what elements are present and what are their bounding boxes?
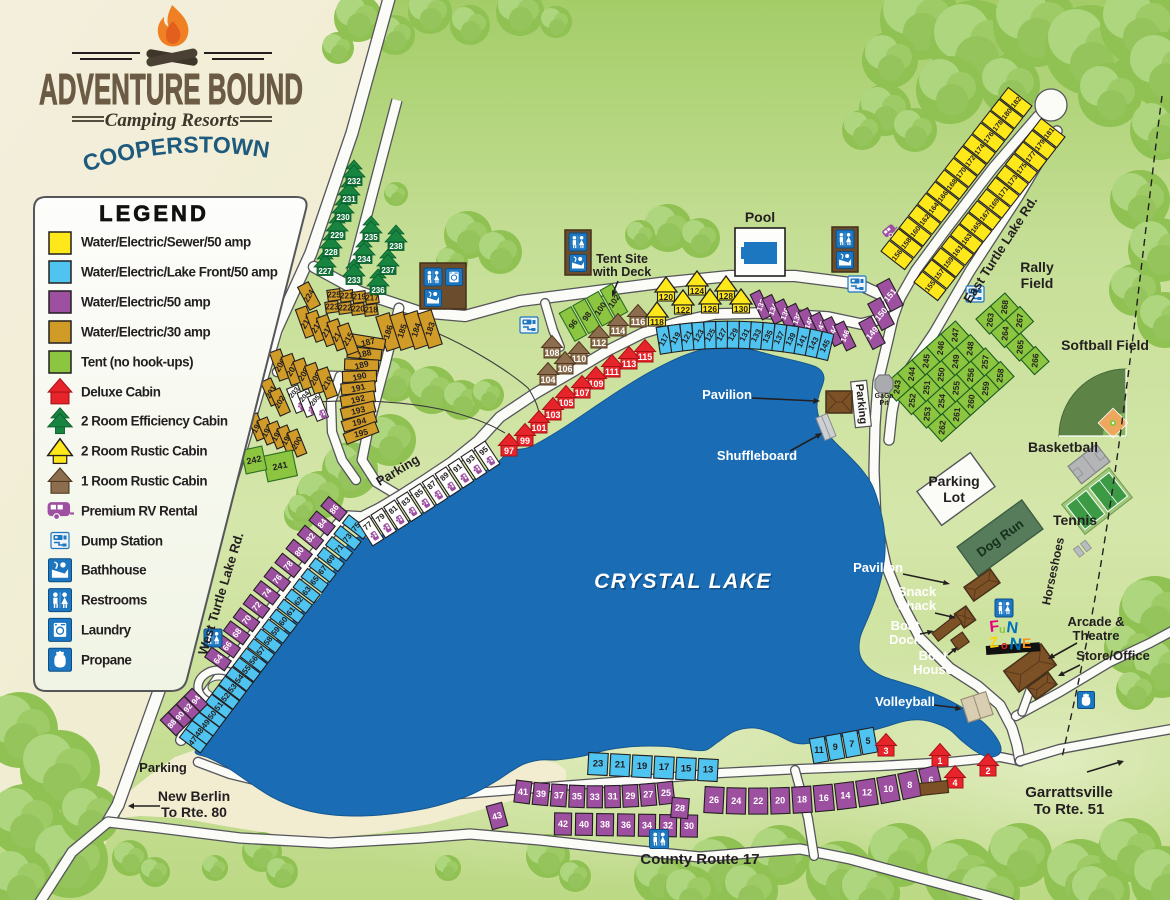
svg-text:Pavilion: Pavilion — [853, 560, 903, 575]
svg-text:Theatre: Theatre — [1073, 628, 1120, 643]
svg-text:106: 106 — [557, 364, 572, 374]
svg-text:246: 246 — [935, 340, 946, 355]
svg-text:37: 37 — [554, 790, 564, 800]
svg-text:259: 259 — [980, 381, 991, 396]
svg-text:Field: Field — [1021, 275, 1054, 291]
svg-text:18: 18 — [797, 795, 807, 805]
svg-text:11: 11 — [814, 745, 824, 755]
svg-text:To Rte. 51: To Rte. 51 — [1034, 801, 1105, 818]
svg-text:1: 1 — [937, 756, 942, 766]
svg-text:107: 107 — [574, 388, 589, 398]
svg-text:116: 116 — [631, 317, 646, 327]
svg-text:223: 223 — [325, 303, 339, 312]
svg-text:113: 113 — [622, 359, 637, 369]
svg-text:247: 247 — [949, 327, 960, 342]
svg-text:236: 236 — [371, 286, 385, 295]
svg-text:218: 218 — [364, 306, 378, 315]
svg-text:257: 257 — [979, 354, 990, 369]
svg-text:CRYSTAL LAKE: CRYSTAL LAKE — [594, 570, 772, 593]
svg-text:252: 252 — [906, 393, 917, 408]
svg-text:9: 9 — [833, 742, 838, 752]
svg-text:128: 128 — [719, 291, 733, 301]
svg-text:Premium RV Rental: Premium RV Rental — [81, 504, 197, 519]
svg-text:25: 25 — [661, 788, 671, 798]
svg-text:Lot: Lot — [943, 489, 965, 505]
svg-text:238: 238 — [389, 242, 403, 251]
svg-text:256: 256 — [965, 367, 976, 382]
svg-text:263: 263 — [984, 312, 995, 327]
svg-text:Pavilion: Pavilion — [702, 387, 752, 402]
svg-text:266: 266 — [1029, 353, 1040, 368]
svg-text:228: 228 — [324, 248, 338, 257]
svg-text:Water/Electric/50 amp: Water/Electric/50 amp — [81, 295, 210, 310]
svg-text:234: 234 — [357, 255, 371, 264]
svg-text:Propane: Propane — [81, 653, 131, 668]
svg-text:30: 30 — [684, 821, 694, 831]
svg-text:42: 42 — [558, 819, 568, 829]
svg-text:Softball Field: Softball Field — [1061, 337, 1149, 353]
svg-text:16: 16 — [819, 793, 829, 803]
svg-text:Water/Electric/30 amp: Water/Electric/30 amp — [81, 325, 210, 340]
svg-text:Boat: Boat — [891, 618, 921, 633]
svg-text:112: 112 — [592, 338, 607, 348]
svg-text:40: 40 — [579, 819, 589, 829]
svg-text:Garrattsville: Garrattsville — [1025, 784, 1113, 801]
svg-text:Water/Electric/Sewer/50 amp: Water/Electric/Sewer/50 amp — [81, 235, 251, 250]
svg-text:267: 267 — [1014, 313, 1025, 328]
svg-text:14: 14 — [840, 791, 850, 801]
svg-text:Laundry: Laundry — [81, 623, 132, 638]
svg-text:222: 222 — [338, 304, 352, 313]
svg-text:ADVENTURE BOUND: ADVENTURE BOUND — [39, 65, 303, 114]
svg-text:26: 26 — [709, 795, 719, 805]
svg-text:31: 31 — [608, 792, 618, 802]
svg-text:235: 235 — [364, 233, 378, 242]
svg-text:5: 5 — [865, 736, 870, 746]
svg-text:227: 227 — [318, 267, 332, 276]
svg-text:108: 108 — [544, 348, 559, 358]
svg-text:17: 17 — [659, 762, 670, 773]
svg-text:Rally: Rally — [1020, 259, 1054, 275]
svg-text:237: 237 — [381, 266, 395, 275]
svg-text:4: 4 — [952, 778, 957, 788]
svg-text:Tennis: Tennis — [1053, 512, 1097, 528]
svg-text:o: o — [1001, 640, 1008, 652]
svg-text:21: 21 — [615, 760, 626, 771]
svg-text:258: 258 — [994, 368, 1005, 383]
svg-text:115: 115 — [638, 352, 653, 362]
svg-text:Pool: Pool — [745, 209, 775, 225]
svg-text:36: 36 — [621, 820, 631, 830]
svg-text:3: 3 — [883, 746, 888, 756]
svg-text:Tent (no hook-ups): Tent (no hook-ups) — [81, 355, 193, 370]
svg-text:28: 28 — [675, 803, 686, 814]
svg-text:Water/Electric/Lake Front/50 a: Water/Electric/Lake Front/50 amp — [81, 265, 278, 280]
svg-text:LEGEND: LEGEND — [99, 201, 209, 226]
svg-text:250: 250 — [935, 367, 946, 382]
svg-text:251: 251 — [921, 380, 932, 395]
svg-text:41: 41 — [518, 787, 528, 797]
svg-text:Dock: Dock — [889, 632, 922, 647]
svg-text:Parking: Parking — [928, 473, 979, 489]
svg-text:35: 35 — [572, 791, 582, 801]
svg-text:249: 249 — [950, 354, 961, 369]
svg-text:7: 7 — [849, 739, 854, 749]
svg-text:GaGa: GaGa — [875, 393, 894, 400]
svg-text:120: 120 — [659, 292, 673, 302]
svg-text:101: 101 — [531, 423, 546, 433]
svg-text:122: 122 — [676, 305, 690, 315]
svg-text:with Deck: with Deck — [592, 265, 651, 279]
svg-text:E: E — [1022, 635, 1031, 651]
svg-text:22: 22 — [753, 796, 763, 806]
svg-text:Camping Resorts: Camping Resorts — [105, 110, 240, 131]
svg-text:23: 23 — [593, 759, 604, 770]
svg-text:244: 244 — [906, 366, 917, 381]
svg-text:118: 118 — [650, 317, 664, 327]
svg-text:2: 2 — [985, 766, 990, 776]
svg-text:245: 245 — [920, 353, 931, 368]
svg-text:29: 29 — [625, 791, 635, 801]
svg-text:130: 130 — [734, 304, 748, 314]
svg-text:Deluxe Cabin: Deluxe Cabin — [81, 385, 161, 400]
svg-text:38: 38 — [600, 820, 610, 830]
svg-text:Snack: Snack — [898, 584, 937, 599]
svg-text:10: 10 — [883, 784, 893, 794]
svg-text:103: 103 — [545, 410, 560, 420]
svg-text:229: 229 — [330, 231, 344, 240]
svg-text:220: 220 — [351, 305, 365, 314]
svg-text:254: 254 — [936, 393, 947, 408]
svg-text:260: 260 — [965, 394, 976, 409]
svg-text:Bathhouse: Bathhouse — [81, 563, 146, 578]
svg-text:248: 248 — [964, 341, 975, 356]
svg-text:1 Room Rustic Cabin: 1 Room Rustic Cabin — [81, 474, 207, 489]
svg-text:13: 13 — [703, 765, 714, 776]
svg-text:House: House — [913, 662, 953, 677]
svg-text:231: 231 — [342, 195, 356, 204]
svg-text:2 Room Efficiency Cabin: 2 Room Efficiency Cabin — [81, 414, 228, 429]
svg-text:262: 262 — [936, 420, 947, 435]
svg-text:Arcade &: Arcade & — [1067, 614, 1124, 629]
svg-text:24: 24 — [731, 796, 741, 806]
svg-text:126: 126 — [703, 304, 717, 314]
svg-text:99: 99 — [520, 436, 530, 446]
svg-text:268: 268 — [999, 299, 1010, 314]
svg-text:Shack: Shack — [898, 598, 937, 613]
svg-text:265: 265 — [1014, 339, 1025, 354]
svg-text:264: 264 — [999, 326, 1010, 341]
svg-text:Parking: Parking — [139, 760, 187, 775]
svg-text:255: 255 — [950, 380, 961, 395]
svg-text:Shuffleboard: Shuffleboard — [717, 448, 797, 463]
svg-text:Dump Station: Dump Station — [81, 534, 163, 549]
svg-text:Pit: Pit — [880, 400, 890, 407]
svg-text:104: 104 — [540, 375, 555, 385]
svg-text:8: 8 — [907, 780, 912, 790]
svg-text:To Rte. 80: To Rte. 80 — [161, 804, 227, 820]
svg-text:114: 114 — [611, 326, 626, 336]
svg-text:27: 27 — [643, 790, 653, 800]
svg-text:124: 124 — [690, 286, 704, 296]
svg-text:12: 12 — [862, 788, 872, 798]
svg-text:Volleyball: Volleyball — [875, 694, 935, 709]
svg-text:N: N — [1009, 634, 1023, 654]
svg-text:Restrooms: Restrooms — [81, 593, 147, 608]
svg-text:232: 232 — [347, 177, 361, 186]
svg-text:15: 15 — [681, 763, 692, 774]
svg-text:Store/Office: Store/Office — [1076, 648, 1150, 663]
svg-text:20: 20 — [775, 796, 785, 806]
svg-text:39: 39 — [536, 789, 546, 799]
svg-text:111: 111 — [605, 367, 619, 377]
svg-text:Basketball: Basketball — [1028, 439, 1098, 455]
svg-text:253: 253 — [921, 406, 932, 421]
svg-text:New Berlin: New Berlin — [158, 788, 230, 804]
svg-text:Boat: Boat — [919, 648, 949, 663]
svg-text:Tent Site: Tent Site — [596, 252, 648, 266]
svg-text:230: 230 — [336, 213, 350, 222]
svg-text:233: 233 — [347, 276, 361, 285]
svg-text:County Route 17: County Route 17 — [640, 851, 759, 868]
svg-text:33: 33 — [590, 792, 600, 802]
svg-text:2 Room Rustic Cabin: 2 Room Rustic Cabin — [81, 444, 207, 459]
svg-text:34: 34 — [642, 820, 652, 830]
svg-text:u: u — [999, 624, 1006, 636]
svg-text:261: 261 — [951, 407, 962, 422]
svg-text:19: 19 — [637, 761, 648, 772]
svg-text:97: 97 — [504, 446, 514, 456]
